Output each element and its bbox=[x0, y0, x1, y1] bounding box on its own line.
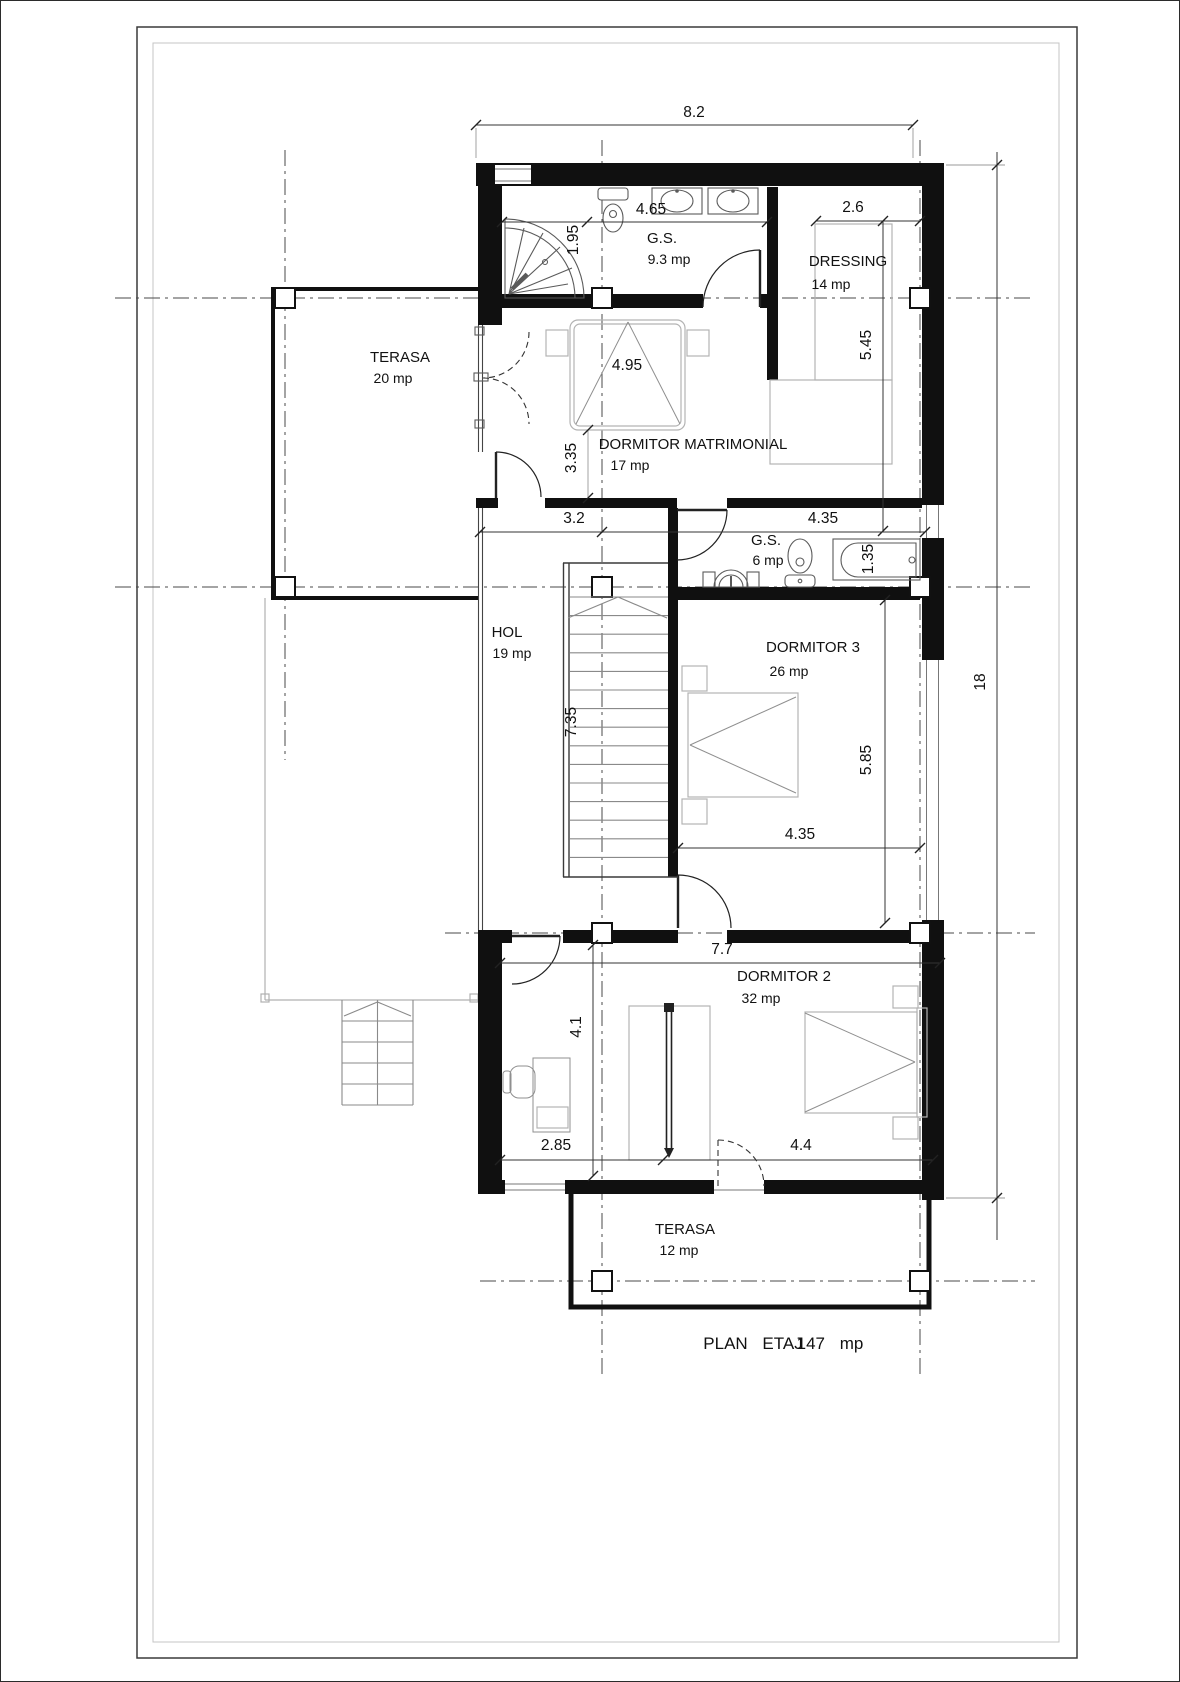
room-gs6-area: 6 mp bbox=[752, 552, 783, 568]
room-hol-area: 19 mp bbox=[493, 645, 532, 661]
dim-matrimonial-height: 3.35 bbox=[563, 443, 580, 473]
glass-walls bbox=[474, 325, 488, 930]
room-terasa20-area: 20 mp bbox=[374, 370, 413, 386]
outdoor-stairs bbox=[342, 1000, 413, 1105]
room-dormitor2-name: DORMITOR 2 bbox=[737, 968, 831, 985]
dim-dorm2-height: 4.1 bbox=[568, 1016, 585, 1038]
room-terasa12-name: TERASA bbox=[655, 1221, 715, 1238]
dim-stair-run: 7.35 bbox=[563, 707, 580, 737]
dim-bed-side: 4.4 bbox=[790, 1137, 812, 1154]
dim-matrimonial-bed: 4.95 bbox=[612, 357, 642, 374]
dim-gs-width: 4.65 bbox=[636, 201, 666, 218]
terrace-12-outline bbox=[571, 1194, 929, 1307]
bed-matrimonial bbox=[546, 320, 709, 430]
room-dormitor3-area: 26 mp bbox=[770, 663, 809, 679]
dim-dorm2-width: 7.7 bbox=[711, 941, 733, 958]
dim-shower-depth: 1.95 bbox=[565, 225, 582, 255]
dim-total-height: 18 bbox=[972, 673, 989, 690]
floor-plan-drawing: 8.2 4.65 1.95 2.6 5.45 4.95 3.35 3.2 4.3… bbox=[0, 0, 1180, 1682]
page-borders bbox=[1, 1, 1180, 1682]
plan-title: PLAN ETAJ 147 mp bbox=[703, 1334, 863, 1353]
plan-title-label: PLAN ETAJ bbox=[703, 1334, 802, 1353]
plan-title-area: 147 mp bbox=[797, 1334, 864, 1353]
bed-dormitor3 bbox=[682, 666, 798, 824]
room-matrimonial-area: 17 mp bbox=[611, 457, 650, 473]
room-gs93-area: 9.3 mp bbox=[648, 251, 691, 267]
closet-dormitor2 bbox=[629, 1003, 710, 1160]
dim-gs6-width: 4.35 bbox=[808, 510, 838, 527]
dim-dressing-width: 2.6 bbox=[842, 199, 864, 216]
terrace-20-outline bbox=[261, 287, 478, 1002]
bed-dormitor2 bbox=[805, 986, 927, 1139]
dim-dorm3-width: 4.35 bbox=[785, 826, 815, 843]
room-dressing-area: 14 mp bbox=[812, 276, 851, 292]
room-hol-name: HOL bbox=[492, 624, 523, 641]
indoor-stairs bbox=[563, 563, 678, 877]
room-dressing-name: DRESSING bbox=[809, 253, 887, 270]
windows bbox=[495, 165, 939, 1190]
double-sink-icon bbox=[652, 188, 758, 214]
dim-dressing-height: 5.45 bbox=[858, 330, 875, 360]
floor-plan-sheet: 8.2 4.65 1.95 2.6 5.45 4.95 3.35 3.2 4.3… bbox=[0, 0, 1180, 1682]
dim-tub-width: 1.35 bbox=[860, 544, 877, 574]
room-dormitor2-area: 32 mp bbox=[742, 990, 781, 1006]
doors bbox=[483, 250, 764, 1186]
desk-and-chair bbox=[503, 1058, 570, 1132]
room-gs6-name: G.S. bbox=[751, 532, 781, 549]
dim-dorm3-height: 5.85 bbox=[858, 745, 875, 775]
dim-top-width: 8.2 bbox=[683, 104, 705, 121]
toilet-2-icon bbox=[785, 539, 815, 587]
room-dormitor3-name: DORMITOR 3 bbox=[766, 639, 860, 656]
room-terasa20-name: TERASA bbox=[370, 349, 430, 366]
room-matrimonial-name: DORMITOR MATRIMONIAL bbox=[599, 436, 788, 453]
room-terasa12-area: 12 mp bbox=[660, 1242, 699, 1258]
dim-desk-side: 2.85 bbox=[541, 1137, 571, 1154]
room-gs93-name: G.S. bbox=[647, 230, 677, 247]
washbasin-icon bbox=[703, 570, 760, 587]
dim-hol-width: 3.2 bbox=[563, 510, 585, 527]
